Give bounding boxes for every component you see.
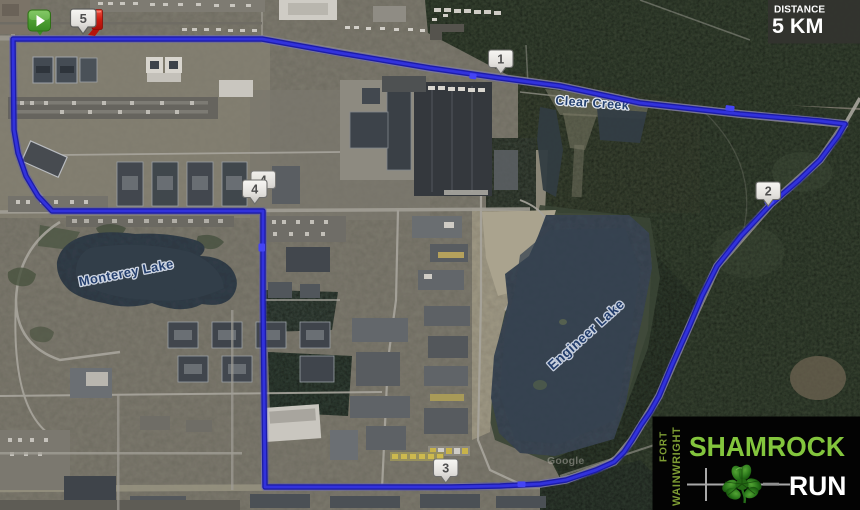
svg-text:1: 1 <box>497 53 504 67</box>
svg-text:FORT: FORT <box>659 431 670 462</box>
svg-text:Google: Google <box>547 455 584 467</box>
svg-text:2: 2 <box>765 185 772 199</box>
svg-text:4: 4 <box>251 183 258 197</box>
svg-text:SHAMROCK: SHAMROCK <box>689 431 845 462</box>
svg-text:3: 3 <box>442 462 449 476</box>
svg-text:5: 5 <box>80 11 87 26</box>
svg-text:RUN: RUN <box>789 471 846 501</box>
svg-text:5 KM: 5 KM <box>772 14 823 38</box>
svg-text:WAINWRIGHT: WAINWRIGHT <box>671 427 683 506</box>
